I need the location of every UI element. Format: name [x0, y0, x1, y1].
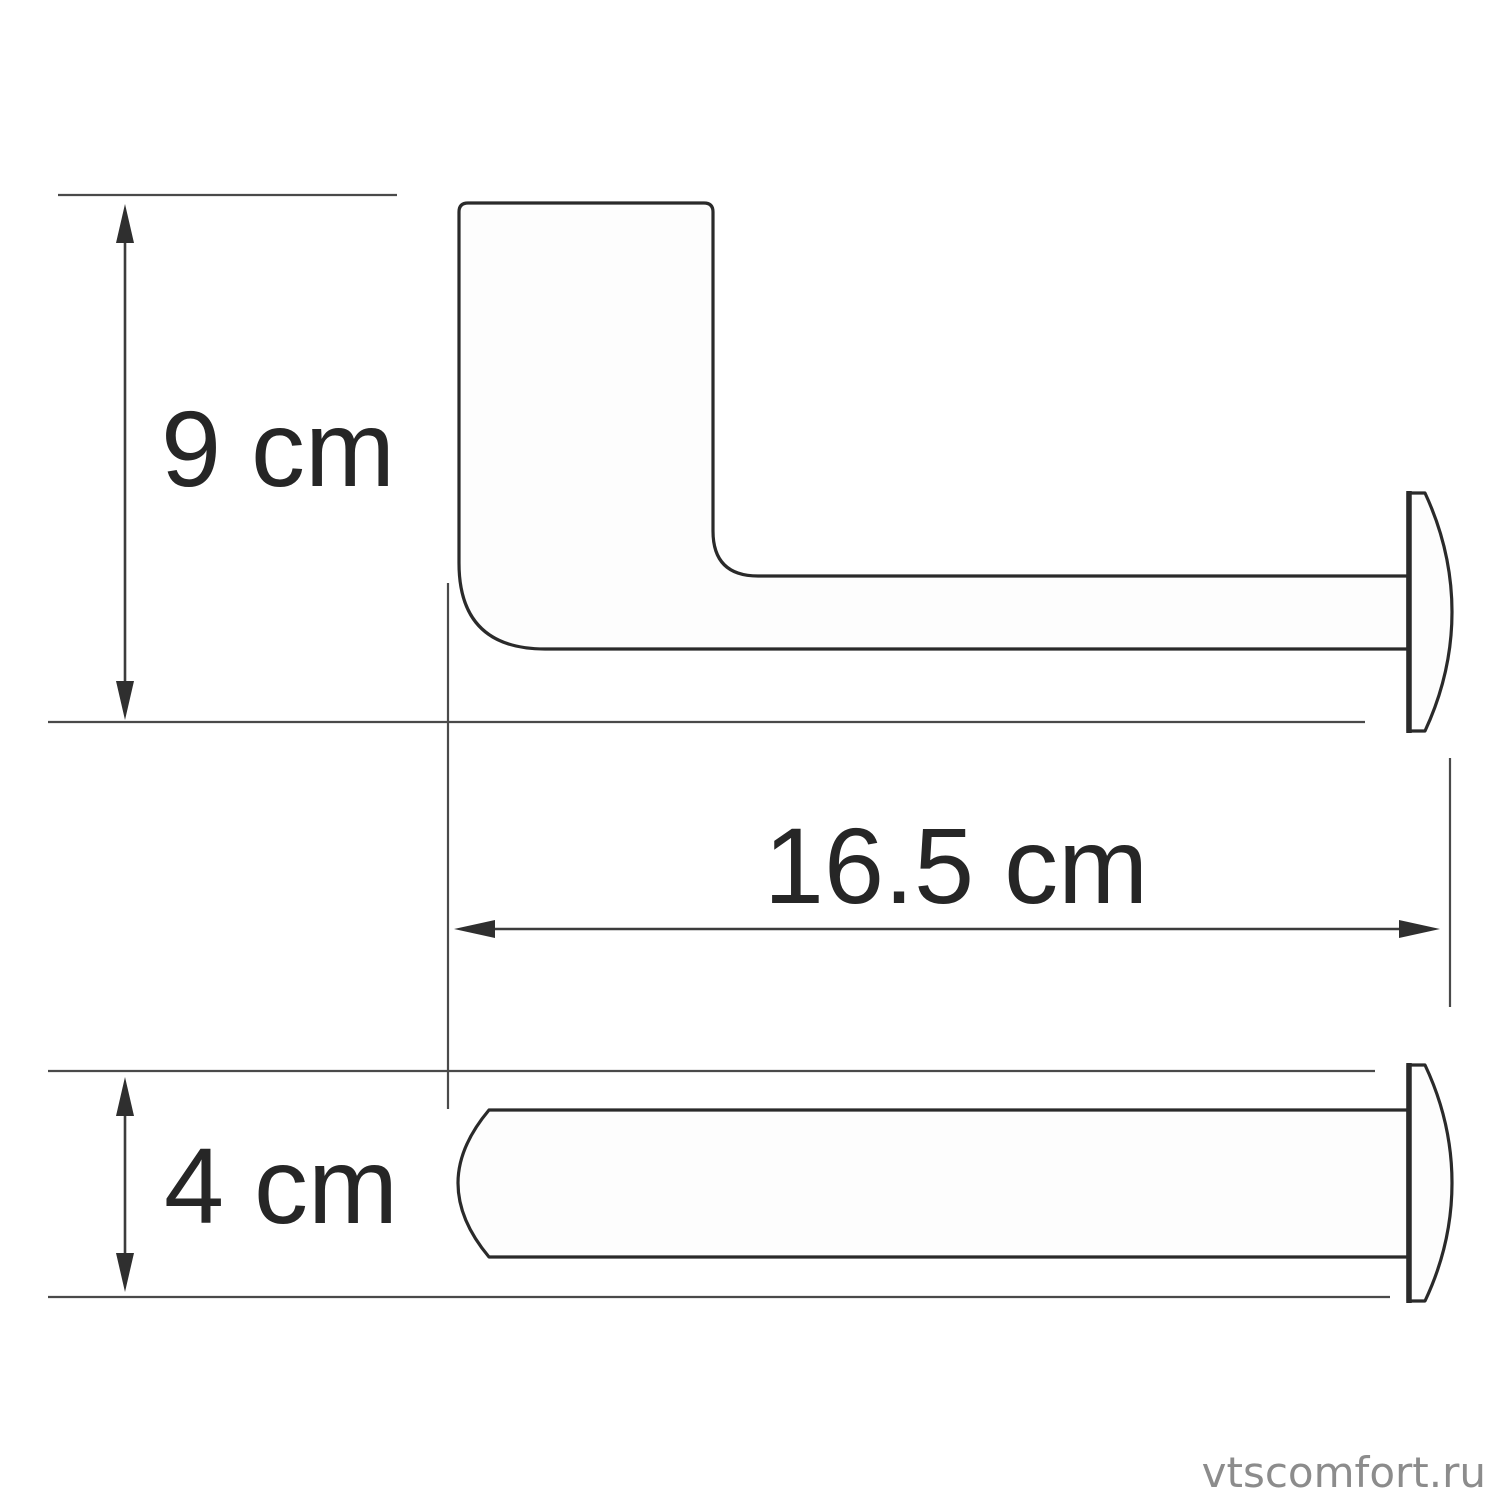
dimension-label-depth: 4 cm: [164, 1132, 398, 1240]
dimension-drawing-svg: [0, 0, 1500, 1500]
diagram-canvas: 9 cm 16.5 cm 4 cm vtscomfort.ru: [0, 0, 1500, 1500]
side-view: [459, 203, 1452, 733]
arrow-up-icon: [116, 1077, 134, 1116]
wall-cap-side-outline: [1408, 493, 1452, 731]
top-view: [458, 1063, 1452, 1303]
watermark-text: vtscomfort.ru: [1202, 1452, 1486, 1494]
arrow-right-icon: [1399, 920, 1440, 938]
wall-cap-top-outline: [1408, 1065, 1452, 1301]
holder-bar-outline: [458, 1110, 1408, 1257]
arrow-up-icon: [116, 204, 134, 243]
holder-l-bracket-outline: [459, 203, 1408, 649]
arrow-down-icon: [116, 1253, 134, 1292]
dimension-label-length: 16.5 cm: [764, 812, 1148, 920]
dimension-label-height: 9 cm: [161, 395, 395, 503]
arrow-down-icon: [116, 681, 134, 720]
arrow-left-icon: [454, 920, 495, 938]
